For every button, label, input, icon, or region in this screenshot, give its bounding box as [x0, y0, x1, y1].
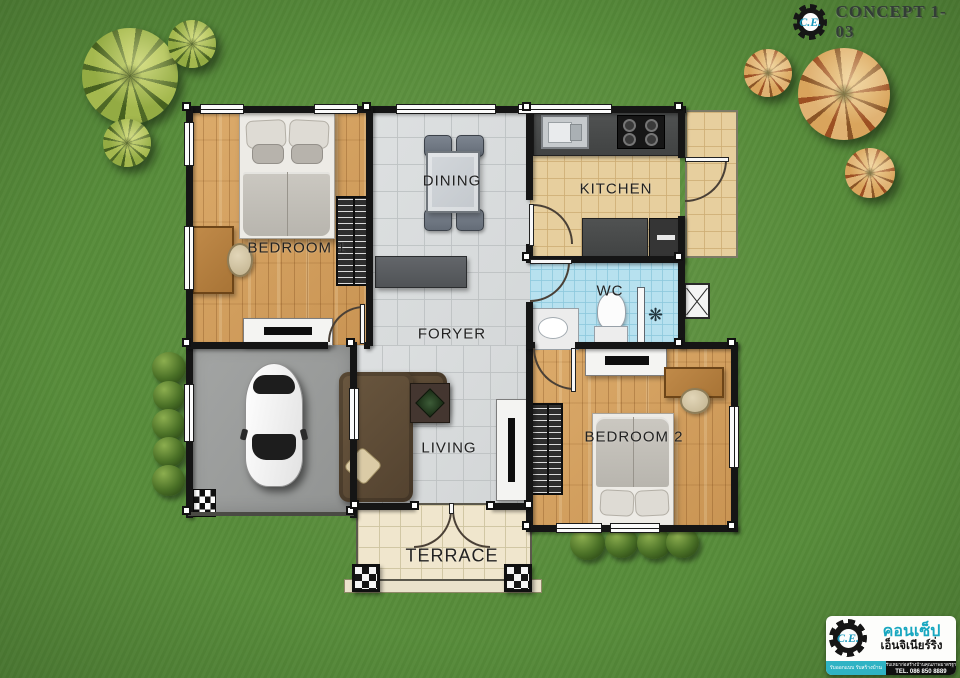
kitchen-sink: [541, 115, 589, 149]
wall-post: [524, 500, 533, 509]
car-windshield: [252, 434, 296, 460]
stove: [617, 115, 665, 149]
window: [610, 523, 660, 533]
wall-post: [182, 506, 191, 515]
window: [184, 226, 194, 290]
wall: [490, 503, 528, 510]
brand-monogram: C.E.: [793, 4, 827, 40]
bush: [153, 381, 185, 411]
wall-post: [727, 338, 736, 347]
wall: [186, 106, 193, 518]
window: [184, 122, 194, 166]
company-logo-row: C.E. คอนเซ็ป เอ็นจิเนียร์ริ่ง: [826, 616, 956, 658]
room-label-bedroom1: BEDROOM 1: [247, 240, 346, 257]
shower-partition: [637, 287, 645, 347]
sink-drain: [570, 124, 582, 141]
wall: [678, 106, 685, 158]
coffee-table: [410, 383, 450, 423]
company-contact-bar: รับออกแบบ รับสร้างบ้าน รับเหมาก่อสร้างบ้…: [826, 661, 956, 675]
pillow: [599, 489, 634, 517]
bed: [239, 111, 335, 239]
door-leaf: [530, 259, 572, 264]
window: [556, 523, 602, 533]
pillow: [252, 144, 284, 164]
room-label-bedroom2: BEDROOM 2: [584, 429, 683, 446]
wall: [366, 106, 373, 346]
wc-vanity: [529, 308, 579, 350]
window: [729, 406, 739, 468]
terrace-pillar: [504, 564, 532, 592]
window: [314, 104, 358, 114]
brand-monogram: C.E.: [829, 619, 867, 657]
blanket: [243, 172, 330, 236]
burner: [623, 133, 636, 146]
terrace-pillar: [352, 564, 380, 592]
wall-post: [727, 521, 736, 530]
wall-post: [362, 102, 371, 111]
room-label-wc: WC: [597, 283, 624, 300]
company-phone: TEL. 086 850 8889: [886, 668, 956, 675]
window: [184, 384, 194, 442]
wall-post: [182, 338, 191, 347]
window: [518, 104, 612, 114]
room-label-living: LIVING: [421, 440, 476, 457]
window: [200, 104, 244, 114]
wall-post: [182, 102, 191, 111]
wall-post: [522, 102, 531, 111]
wall-post: [410, 501, 419, 510]
gear-icon: C.E.: [829, 619, 867, 657]
tree: [798, 48, 890, 140]
car: [245, 363, 303, 487]
wall-post: [674, 338, 683, 347]
car-rear-window: [253, 375, 295, 394]
garage-edge: [188, 512, 354, 516]
tv: [264, 327, 312, 335]
door-leaf: [360, 304, 365, 344]
company-tagline: รับออกแบบ รับสร้างบ้าน: [826, 661, 886, 675]
tv: [605, 356, 649, 365]
tv-cabinet: [585, 347, 667, 376]
window: [349, 388, 359, 440]
sideboard: [375, 256, 467, 288]
room-label-terrace: TERRACE: [405, 546, 498, 567]
gear-icon: C.E.: [793, 4, 827, 40]
wall: [526, 106, 533, 200]
tv: [508, 418, 515, 482]
burner: [645, 119, 658, 132]
tree: [82, 28, 178, 124]
room-label-kitchen: KITCHEN: [580, 181, 653, 198]
company-contact: รับเหมาก่อสร้างบ้านคุณภาพมาตรฐาน TEL. 08…: [886, 661, 956, 675]
sink-basin: [548, 122, 572, 143]
wall-post: [674, 252, 683, 261]
plant-icon: ❋: [648, 306, 663, 324]
tv-stand: [496, 399, 528, 501]
blanket: [596, 417, 669, 487]
tree: [103, 119, 151, 167]
kitchen-counter: [582, 218, 648, 258]
wall-post: [350, 500, 359, 509]
tree: [744, 49, 792, 97]
pillow: [291, 144, 323, 164]
door-leaf: [449, 503, 454, 514]
tree: [845, 148, 895, 198]
wall: [575, 342, 738, 349]
wall: [186, 342, 328, 349]
floor-plan-canvas: ❋: [0, 0, 960, 678]
company-logo-card: C.E. คอนเซ็ป เอ็นจิเนียร์ริ่ง รับออกแบบ …: [826, 616, 956, 675]
door-leaf: [685, 157, 729, 162]
tree: [168, 20, 216, 68]
company-name-line2: เอ็นจิเนียร์ริ่ง: [871, 640, 952, 652]
room-label-foyer: FORYER: [418, 326, 486, 343]
bush: [152, 352, 186, 384]
wall: [678, 216, 685, 348]
wall-post: [486, 501, 495, 510]
bush: [152, 465, 185, 496]
pillow: [634, 489, 669, 517]
burner: [623, 119, 636, 132]
wall: [352, 503, 414, 510]
ac-unit: [684, 283, 710, 319]
wall-post: [522, 521, 531, 530]
wall-post: [674, 102, 683, 111]
room-label-dining: DINING: [423, 173, 482, 190]
company-name-line1: คอนเซ็ป: [871, 624, 952, 641]
window: [396, 104, 496, 114]
wall: [526, 302, 533, 532]
bush: [152, 409, 185, 440]
chair: [680, 388, 710, 414]
concept-title: CONCEPT 1-03: [835, 2, 960, 42]
header-logo: C.E. CONCEPT 1-03: [793, 2, 960, 42]
wardrobe: [531, 403, 563, 495]
company-name: คอนเซ็ป เอ็นจิเนียร์ริ่ง: [871, 624, 952, 653]
bush: [153, 437, 185, 467]
door-leaf: [529, 204, 534, 246]
door-leaf: [571, 348, 576, 392]
burner: [645, 133, 658, 146]
